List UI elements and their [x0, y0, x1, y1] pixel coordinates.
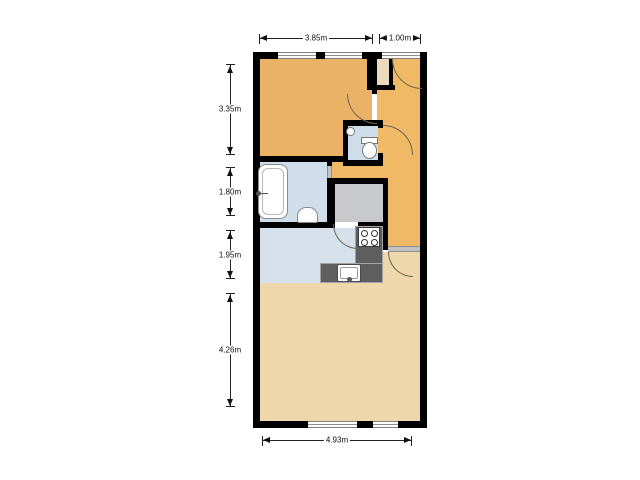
wall-exterior-left [253, 52, 260, 428]
toilet-hand-basin [346, 127, 355, 136]
dimension-label-top-entry: 1.00m [387, 34, 413, 43]
bathtub [258, 164, 288, 219]
wall-badkamer-right-lower [327, 178, 335, 228]
stove-burner [361, 239, 368, 246]
kitchen-sink [337, 264, 361, 282]
bathroom-sink [297, 207, 318, 223]
toilet-bowl [362, 142, 377, 159]
dimension-tick [226, 230, 235, 231]
floorplan-canvas: Slaapkamer Toilet Hal Badkamer CV / Berg… [0, 0, 640, 480]
dimension-arrow [404, 437, 411, 443]
dimension-tick [226, 167, 235, 168]
wall-keuken-top [253, 222, 332, 228]
wall-top-segment [362, 52, 382, 59]
window [325, 52, 362, 59]
dimension-tick [411, 436, 412, 446]
wall-bottom-segment [357, 421, 373, 428]
dimension-label-left-woonkamer: 4.26m [217, 346, 243, 355]
dimension-tick [226, 215, 235, 216]
bathtub-inner [262, 168, 284, 215]
dimension-arrow [227, 271, 233, 278]
dimension-arrow [260, 35, 267, 41]
dimension-label-bottom-width: 4.93m [324, 436, 350, 445]
dimension-tick [226, 278, 235, 279]
dimension-tick [226, 64, 235, 65]
wall-bottom-segment [253, 421, 308, 428]
dimension-arrow [227, 399, 233, 406]
window [278, 52, 316, 59]
room-woonkamer [260, 283, 420, 421]
wall-top-segment [316, 52, 325, 59]
wall-toilet-bottom [343, 160, 383, 166]
stove-burner [371, 230, 378, 237]
dimension-tick [226, 154, 235, 155]
dimension-arrow [413, 35, 420, 41]
dimension-label-top-main: 3.85m [303, 34, 329, 43]
dimension-label-left-slaapkamer: 3.35m [217, 105, 243, 114]
window [308, 421, 357, 428]
dimension-arrow [227, 66, 233, 73]
window [373, 421, 398, 428]
wall-cv-right [383, 178, 388, 250]
wall-top-segment [253, 52, 278, 59]
dimension-arrow [227, 147, 233, 154]
dimension-label-left-keuken: 1.95m [217, 251, 243, 260]
stove-burner [361, 230, 368, 237]
stove [358, 227, 380, 247]
bath-faucet-spout [260, 193, 268, 194]
stove-burner [371, 239, 378, 246]
dimension-tick [226, 406, 235, 407]
wall-exterior-right [420, 52, 427, 428]
dimension-tick [420, 34, 421, 44]
room-cv-berging [335, 184, 383, 222]
wall-badkamer-right-upper [327, 156, 332, 166]
wall-niche-bottom [367, 85, 395, 90]
dimension-arrow [227, 295, 233, 302]
dimension-tick [226, 293, 235, 294]
wall-cv-top [332, 178, 388, 184]
dimension-tick [372, 34, 373, 44]
dimension-arrow [227, 169, 233, 176]
dimension-label-left-badkamer: 1.80m [217, 188, 243, 197]
front-door-band [382, 52, 420, 59]
dimension-arrow [263, 437, 270, 443]
wall-bottom-segment [398, 421, 427, 428]
dimension-arrow [365, 35, 372, 41]
kitchen-faucet [347, 277, 352, 282]
dimension-arrow [227, 208, 233, 215]
dimension-arrow [227, 232, 233, 239]
